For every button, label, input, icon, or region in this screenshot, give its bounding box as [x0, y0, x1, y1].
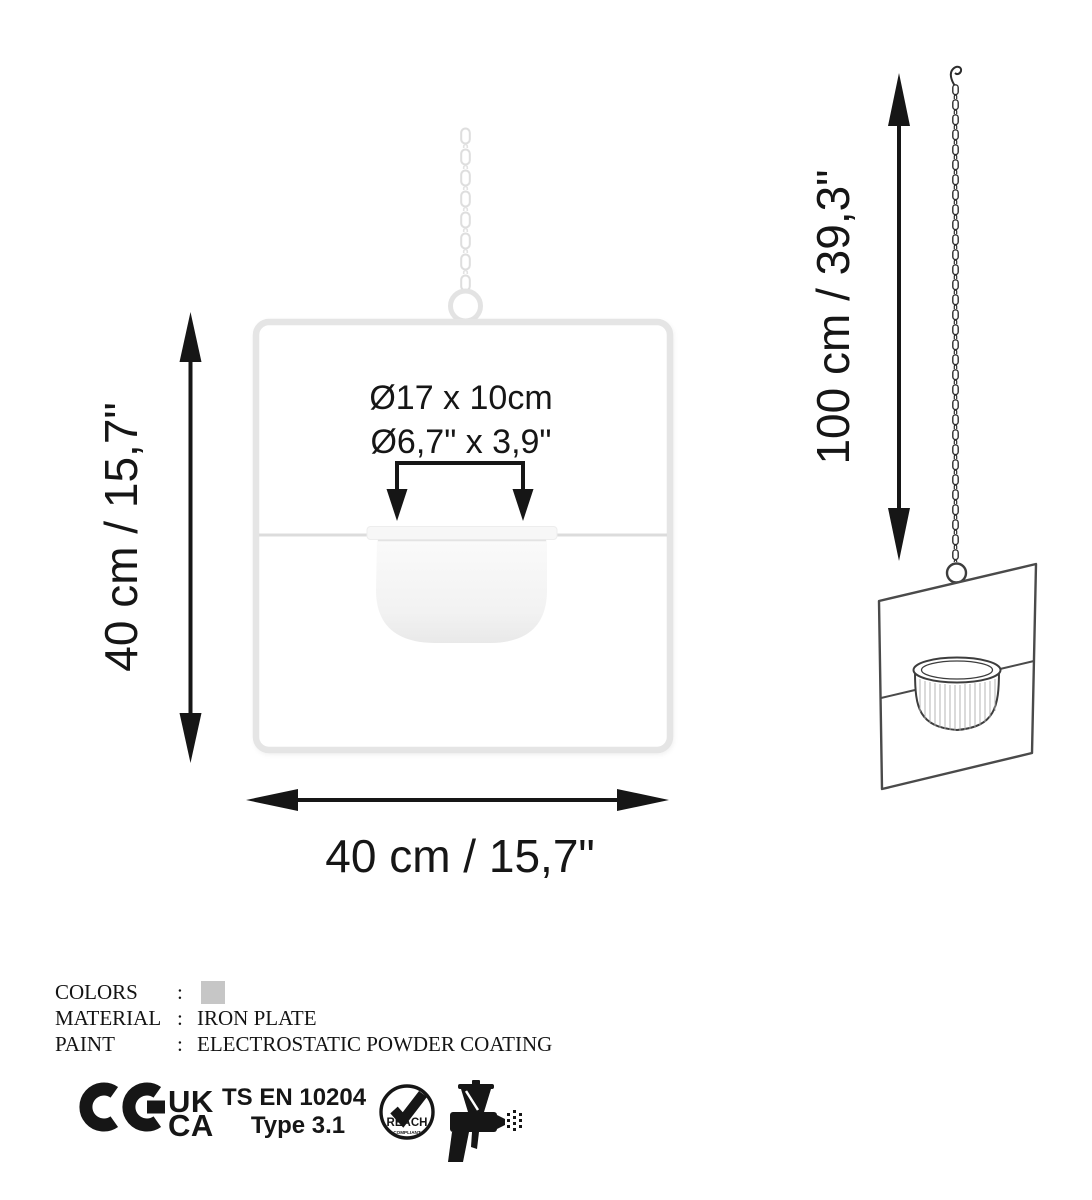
- color-swatch: [201, 981, 225, 1004]
- arrow-up-icon: [888, 73, 910, 126]
- reach-badge-icon: REACH COMPLIANT: [381, 1086, 433, 1138]
- side-view-pot: [914, 658, 1001, 732]
- front-view-pot: [367, 527, 557, 644]
- product-dimension-sheet: Ø17 x 10cm Ø6,7" x 3,9" 40 cm / 15,7" 40…: [0, 0, 1092, 1200]
- front-view: Ø17 x 10cm Ø6,7" x 3,9" 40 cm / 15,7" 40…: [95, 127, 670, 882]
- pot-dimension-label-metric: Ø17 x 10cm: [369, 379, 552, 417]
- width-dimension-label: 40 cm / 15,7": [325, 830, 594, 882]
- height-dimension-arrow: [180, 312, 202, 763]
- spec-colon: :: [177, 1032, 183, 1056]
- arrow-up-icon: [180, 312, 202, 362]
- spec-value-material: IRON PLATE: [197, 1006, 317, 1030]
- chain-hook-icon: [951, 67, 961, 86]
- spray-gun-icon: [448, 1080, 522, 1162]
- standard-type-text: Type 3.1: [251, 1112, 345, 1139]
- chain-length-arrow: [888, 73, 910, 561]
- standard-certificate-text: TS EN 10204 Type 3.1: [222, 1084, 367, 1139]
- width-dimension-arrow: [246, 789, 669, 811]
- arrow-right-icon: [617, 789, 669, 811]
- ukca-bottom-text: CA: [168, 1108, 214, 1143]
- chain-length-label: 100 cm / 39,3": [807, 169, 859, 464]
- side-view-chain: [950, 84, 961, 562]
- ce-mark-icon: [86, 1089, 165, 1125]
- hanging-ring: [451, 291, 481, 321]
- arrow-left-icon: [246, 789, 298, 811]
- certification-row: UK CA TS EN 10204 Type 3.1 REACH COMPLIA…: [86, 1080, 522, 1162]
- spec-label-paint: PAINT: [55, 1032, 115, 1056]
- specs-table: COLORS : MATERIAL : IRON PLATE PAINT : E…: [55, 980, 552, 1056]
- side-view: 100 cm / 39,3": [807, 67, 1036, 789]
- pot-dimension-label-imperial: Ø6,7" x 3,9": [370, 423, 551, 461]
- spray-dots-icon: [507, 1110, 522, 1131]
- standard-name-text: TS EN 10204: [222, 1084, 367, 1111]
- spec-colon: :: [177, 980, 183, 1004]
- arrow-down-icon: [888, 508, 910, 561]
- spec-value-paint: ELECTROSTATIC POWDER COATING: [197, 1032, 552, 1056]
- hanging-chain: [458, 127, 473, 293]
- ukca-mark-icon: UK CA: [168, 1084, 214, 1143]
- diagram-canvas: Ø17 x 10cm Ø6,7" x 3,9" 40 cm / 15,7" 40…: [0, 0, 1092, 1200]
- spec-label-material: MATERIAL: [55, 1006, 161, 1030]
- reach-title-text: REACH: [387, 1117, 428, 1129]
- side-view-ring: [947, 564, 966, 583]
- arrow-down-icon: [180, 713, 202, 763]
- spec-colon: :: [177, 1006, 183, 1030]
- spec-label-colors: COLORS: [55, 980, 138, 1004]
- height-dimension-label: 40 cm / 15,7": [95, 402, 147, 671]
- reach-subtitle-text: COMPLIANT: [393, 1130, 420, 1135]
